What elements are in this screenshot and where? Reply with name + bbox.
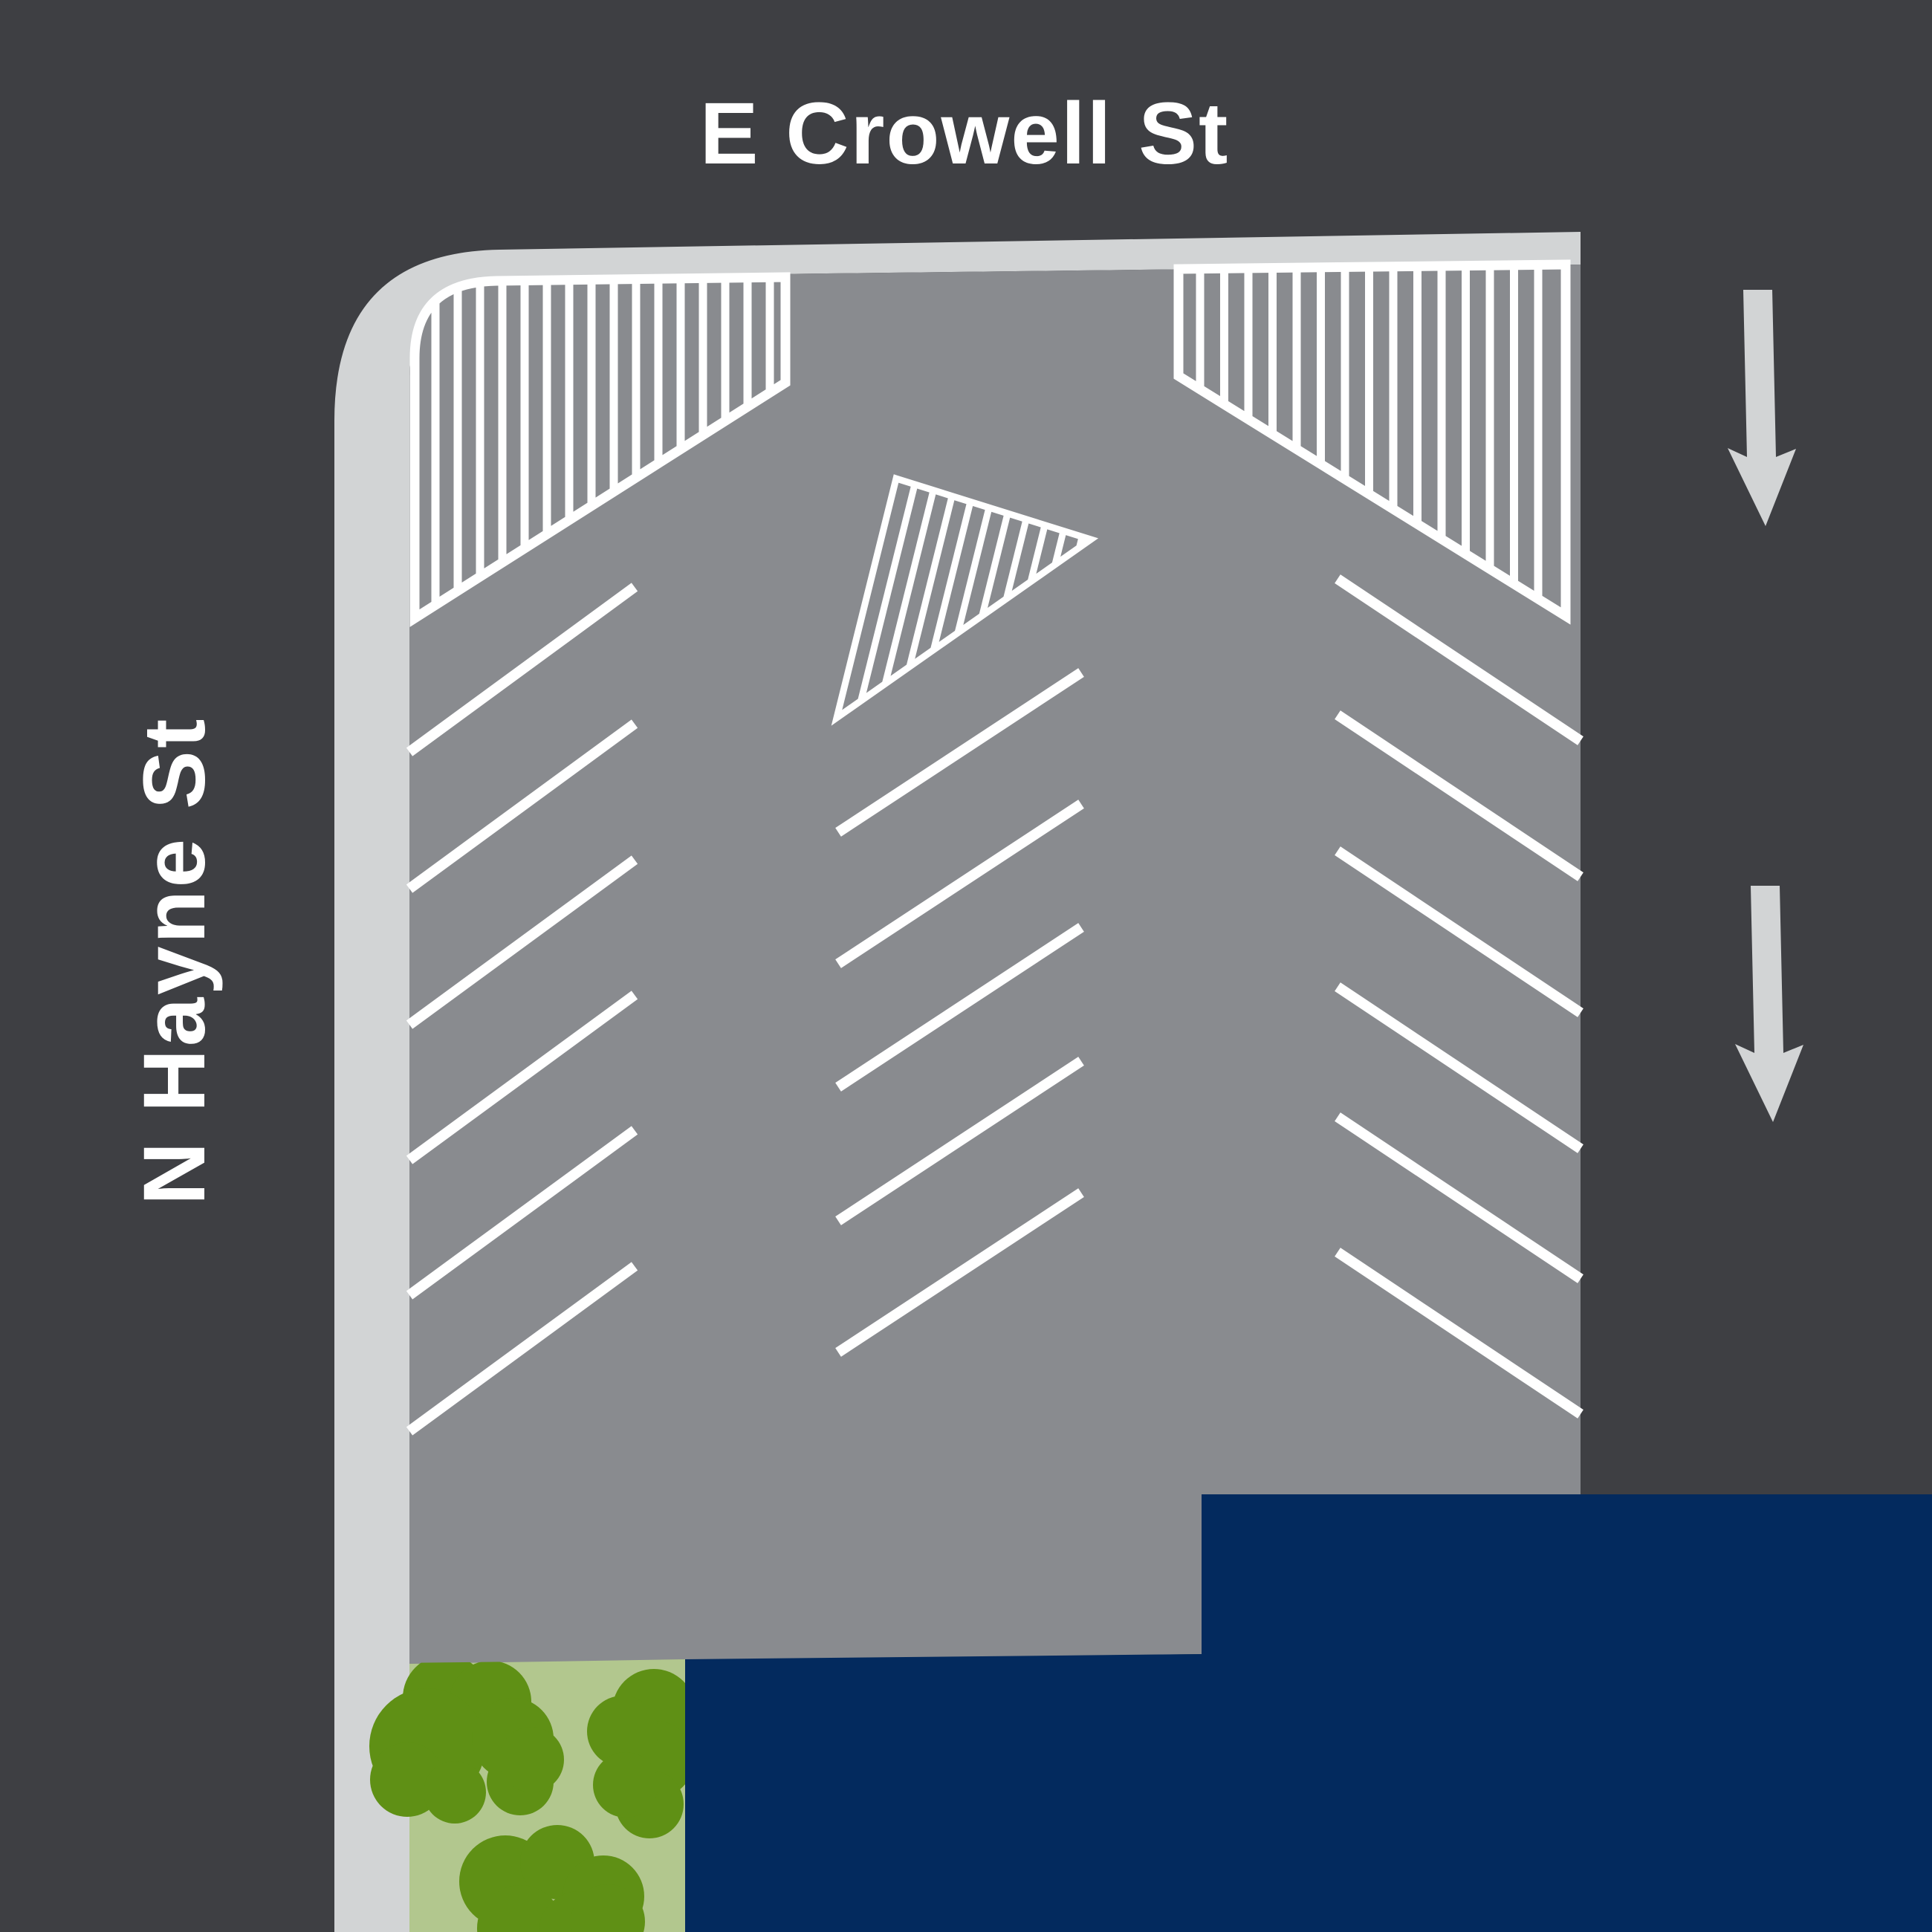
- svg-text:N Hayne St: N Hayne St: [126, 716, 224, 1205]
- svg-text:E Crowell St: E Crowell St: [700, 85, 1229, 183]
